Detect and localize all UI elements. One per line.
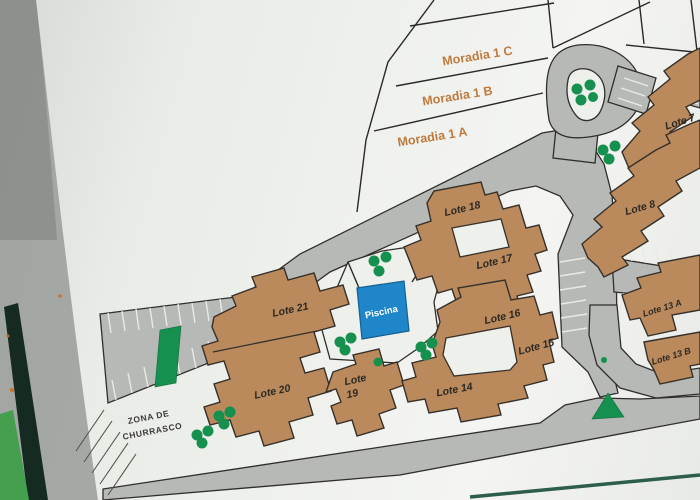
tree-icon (197, 438, 208, 449)
label-moradia-1b: Moradia 1 B (421, 84, 493, 109)
tree-icon (427, 338, 438, 349)
tree-icon (225, 407, 236, 418)
tree-icon (340, 345, 351, 356)
tree-icon (576, 95, 587, 106)
tree-icon (421, 350, 432, 361)
tree-icon (374, 358, 383, 367)
sign-bottom-frame-line (470, 475, 700, 497)
tree-icon (346, 333, 357, 344)
tree-icon (598, 145, 609, 156)
tree-icon (585, 80, 596, 91)
site-map: Moradia 1 C Moradia 1 B Moradia 1 A Lote… (0, 0, 700, 500)
tree-icon (369, 256, 380, 267)
tree-icon (610, 141, 621, 152)
site-plan-photo: Moradia 1 C Moradia 1 B Moradia 1 A Lote… (0, 0, 700, 500)
tree-icon (381, 252, 392, 263)
tree-icon (604, 154, 615, 165)
tree-icon (374, 266, 385, 277)
tree-icon (588, 92, 598, 102)
tree-icon (572, 84, 583, 95)
tree-icon (601, 357, 607, 363)
tree-icon (203, 426, 214, 437)
label-moradia-1c: Moradia 1 C (441, 44, 513, 69)
tree-icon (219, 419, 230, 430)
label-moradia-1a: Moradia 1 A (397, 125, 469, 150)
